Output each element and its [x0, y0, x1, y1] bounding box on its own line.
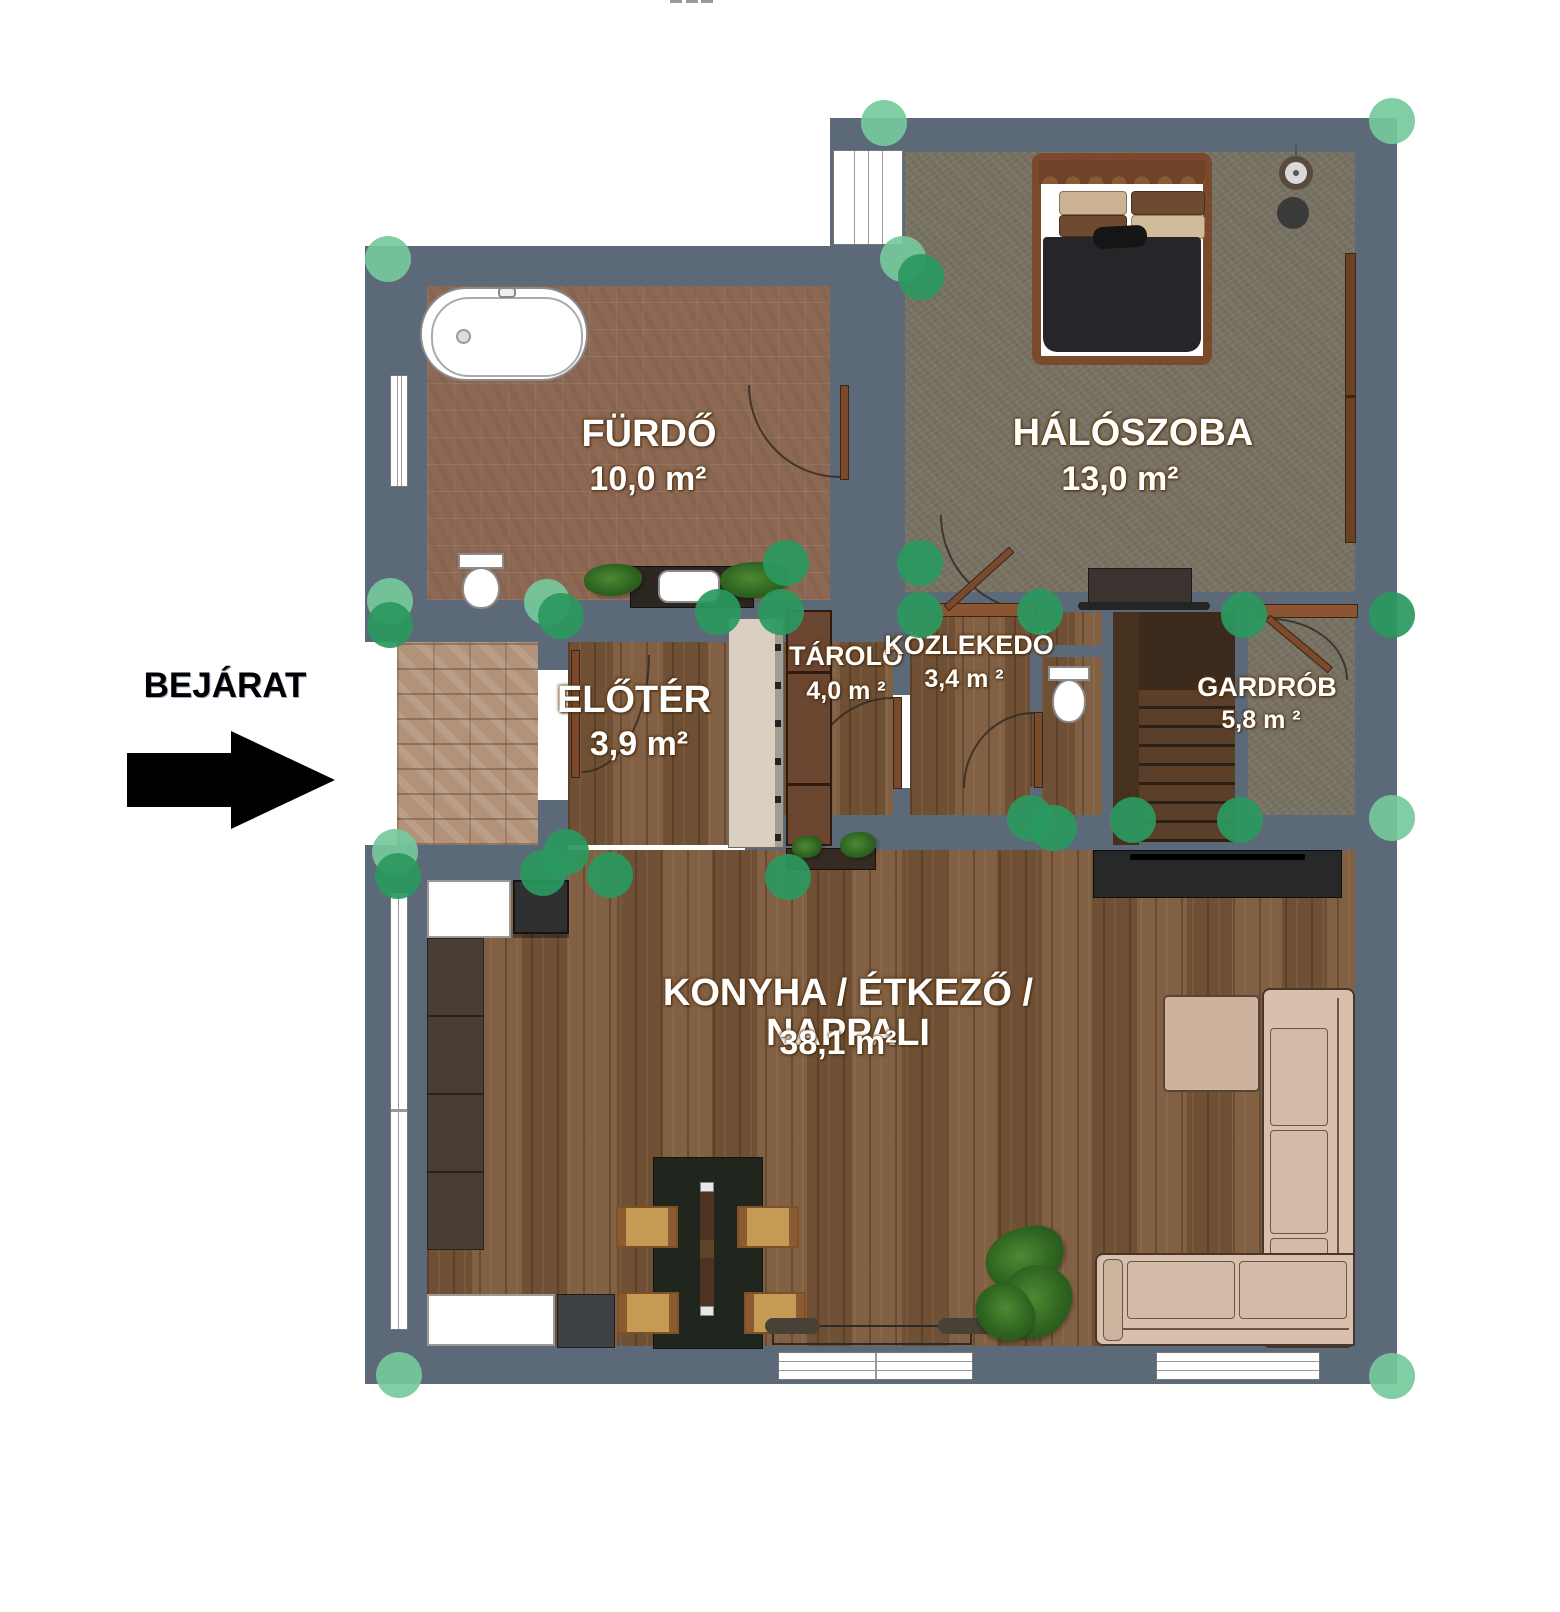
wall-bath-top: [365, 246, 868, 286]
window-bottom-left: [778, 1352, 973, 1380]
mirror-stand: [1295, 143, 1297, 157]
sofa-cushion: [1127, 1261, 1235, 1319]
bed-pillow: [1059, 191, 1127, 215]
room-area-furdo: 10,0 m²: [528, 462, 768, 498]
bathtub-drain: [456, 329, 471, 344]
wall-junction-handle[interactable]: [538, 593, 584, 639]
entry-stone-floor: [397, 642, 538, 845]
wall-junction-handle[interactable]: [1217, 797, 1263, 843]
sofa-base: [1095, 1253, 1355, 1346]
kitchen-fridge: [427, 880, 511, 938]
room-label-kozlekedo: KÖZLEKEDŐ: [869, 631, 1069, 659]
bed-duvet: [1043, 237, 1201, 352]
room-area-eloter: 3,9 m²: [519, 727, 759, 763]
wall-junction-handle[interactable]: [1110, 797, 1156, 843]
window-bathroom-left: [390, 375, 408, 487]
coffee-table-ottoman: [1163, 995, 1260, 1092]
wall-right: [1355, 118, 1397, 1384]
clipped-object-top: [670, 0, 682, 3]
wall-junction-handle[interactable]: [1017, 589, 1063, 635]
entrance-arrow-body: [127, 753, 233, 807]
sofa-cushion: [1270, 1028, 1328, 1126]
room-area-gardrob: 5,8 m ²: [1161, 707, 1361, 733]
clipped-object-top: [686, 0, 698, 3]
dining-chair: [737, 1206, 799, 1248]
tv: [1130, 854, 1305, 860]
room-area-kozlekedo: 3,4 m ²: [864, 666, 1064, 692]
bed-pouf: [1092, 225, 1147, 250]
sofa-armrest: [1103, 1259, 1123, 1341]
sofa-front-line: [1105, 1328, 1349, 1330]
wall-junction-handle[interactable]: [765, 854, 811, 900]
bed-pillow: [1131, 191, 1205, 215]
bathtub: [420, 287, 588, 381]
kitchen-island-white: [427, 1294, 555, 1346]
wall-junction-handle[interactable]: [1369, 98, 1415, 144]
bench-shoes: [765, 1318, 820, 1334]
wall-junction-handle[interactable]: [861, 100, 907, 146]
bedroom-desk-chair: [1078, 602, 1210, 610]
wall-junction-handle[interactable]: [897, 540, 943, 586]
bath-toilet-bowl: [462, 567, 500, 609]
kitchen-counter: [427, 938, 484, 1250]
mirror-center-dot: [1293, 170, 1299, 176]
table-runner-cap: [700, 1182, 714, 1192]
bedroom-wall-shelf: [1345, 253, 1356, 543]
wall-junction-handle[interactable]: [367, 602, 413, 648]
dining-chair: [616, 1206, 678, 1248]
window-bottom-right: [1156, 1352, 1320, 1380]
wall-junction-handle[interactable]: [1369, 1353, 1415, 1399]
table-runner-cap: [700, 1306, 714, 1316]
wall-entry-hall-stub-top: [538, 640, 568, 670]
bed: [1032, 153, 1212, 365]
wall-junction-handle[interactable]: [1031, 805, 1077, 851]
window-bedroom-left: [833, 150, 903, 245]
entrance-label: BEJÁRAT: [120, 666, 330, 706]
bathroom-door: [840, 385, 849, 480]
clipped-object-top: [701, 0, 713, 3]
wall-junction-handle[interactable]: [897, 592, 943, 638]
wall-storage-corridor-bottom: [893, 788, 910, 845]
room-label-gardrob: GARDRÓB: [1167, 673, 1367, 701]
wall-junction-handle[interactable]: [763, 540, 809, 586]
wall-junction-handle[interactable]: [543, 829, 589, 875]
room-area-haloszoba: 13,0 m²: [970, 462, 1270, 498]
wall-junction-handle[interactable]: [898, 254, 944, 300]
wall-junction-handle[interactable]: [758, 589, 804, 635]
window-living-left: [390, 892, 408, 1330]
wall-junction-handle[interactable]: [587, 852, 633, 898]
bathtub-inner: [431, 297, 583, 377]
wall-junction-handle[interactable]: [365, 236, 411, 282]
kitchen-island-dark: [557, 1294, 615, 1348]
wall-junction-handle[interactable]: [1369, 592, 1415, 638]
sofa-cushion: [1239, 1261, 1347, 1319]
floor-plan: FÜRDŐ 10,0 m² HÁLÓSZOBA 13,0 m² ELŐTÉR 3…: [0, 0, 1560, 1612]
wc-door: [1034, 712, 1043, 788]
room-label-eloter: ELŐTÉR: [514, 681, 754, 721]
wall-top: [830, 118, 1397, 152]
entrance-arrow-head: [231, 731, 335, 829]
bedroom-stool: [1277, 197, 1309, 229]
bathtub-faucet: [498, 287, 516, 298]
sofa-cushion: [1270, 1130, 1328, 1234]
wall-junction-handle[interactable]: [375, 853, 421, 899]
table-runner: [700, 1192, 714, 1306]
room-label-haloszoba: HÁLÓSZOBA: [983, 414, 1283, 454]
wall-junction-handle[interactable]: [695, 589, 741, 635]
bed-headboard: [1039, 160, 1205, 184]
wall-junction-handle[interactable]: [1369, 795, 1415, 841]
storage-door: [893, 697, 902, 789]
wall-junction-handle[interactable]: [376, 1352, 422, 1398]
wall-junction-handle[interactable]: [1221, 592, 1267, 638]
room-label-furdo: FÜRDŐ: [529, 415, 769, 455]
wardrobe-door-bar: [1258, 604, 1358, 618]
room-area-nappali: 38,1 m²: [588, 1026, 1088, 1062]
dining-chair: [617, 1292, 679, 1334]
